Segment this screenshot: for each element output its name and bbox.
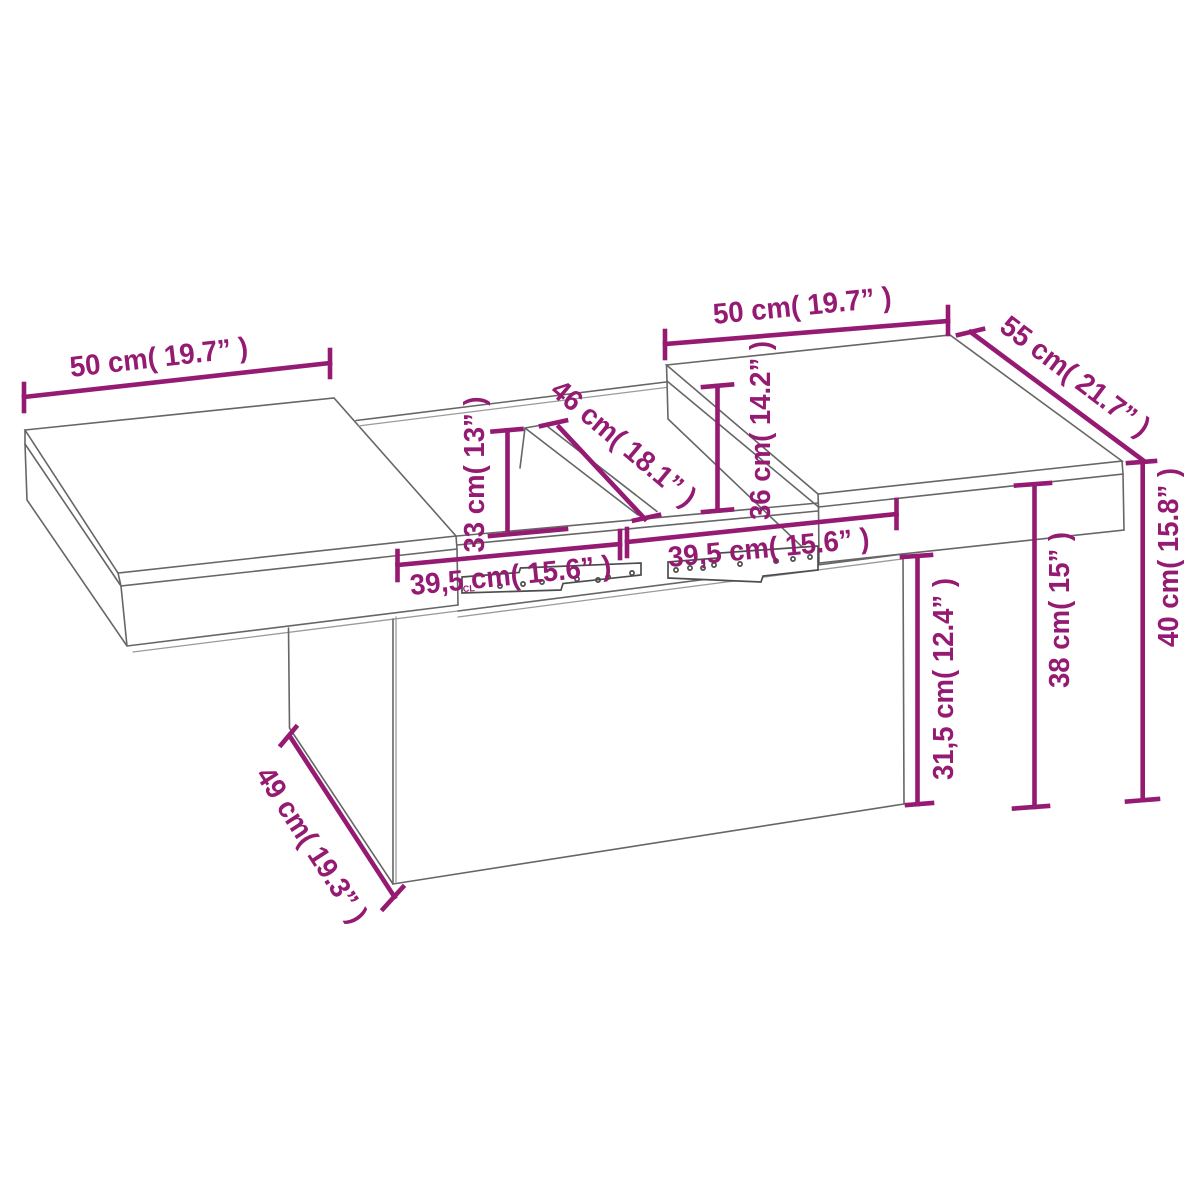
svg-text:38 cm( 15” ): 38 cm( 15” )	[1042, 532, 1075, 688]
svg-text:36 cm( 14.2” ): 36 cm( 14.2” )	[743, 341, 776, 520]
svg-text:31,5 cm( 12.4” ): 31,5 cm( 12.4” )	[926, 578, 959, 780]
svg-text:33 cm( 13” ): 33 cm( 13” )	[457, 396, 490, 552]
svg-text:40 cm( 15.8” ): 40 cm( 15.8” )	[1151, 468, 1184, 647]
